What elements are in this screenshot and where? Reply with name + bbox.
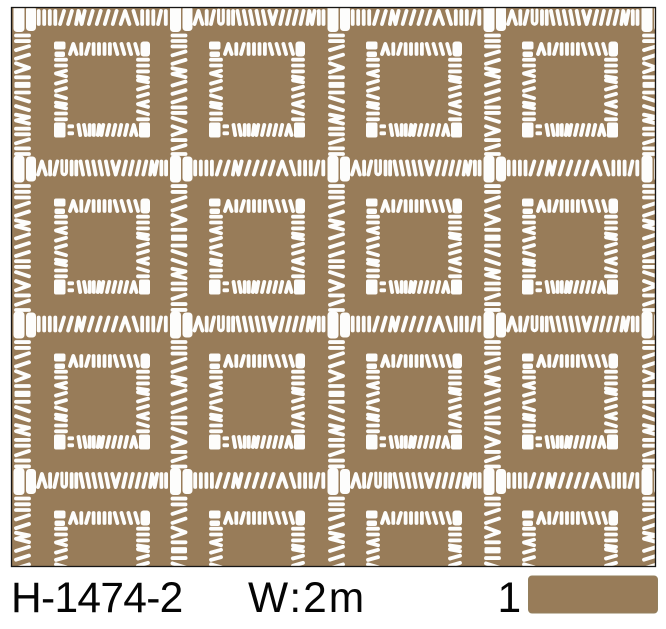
svg-text:1: 1	[498, 575, 522, 622]
svg-text:W:2m: W:2m	[248, 575, 366, 622]
svg-text:H-1474-2: H-1474-2	[11, 575, 183, 622]
